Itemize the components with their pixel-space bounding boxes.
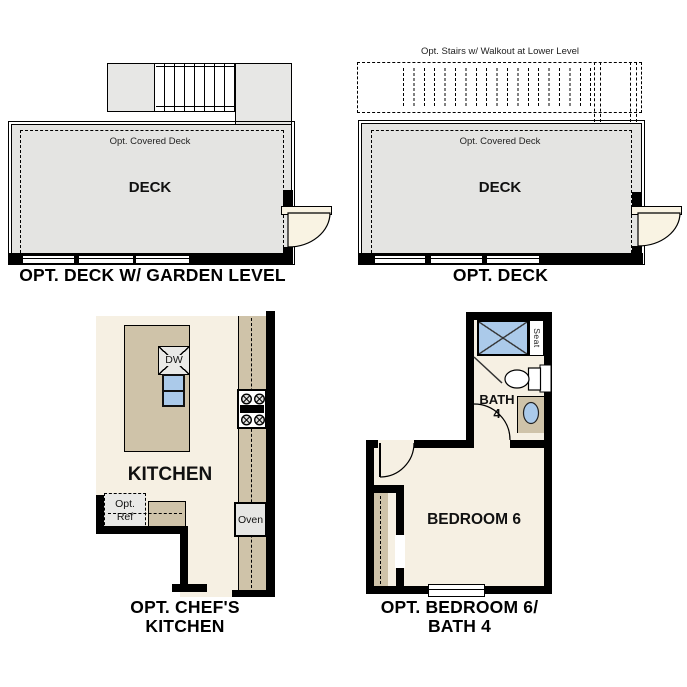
fridge-label-line1: Opt. bbox=[105, 498, 145, 511]
deck-railing bbox=[135, 255, 190, 264]
title-line1: OPT. CHEF'S bbox=[60, 598, 310, 617]
shower bbox=[477, 320, 529, 356]
wall-segment bbox=[632, 192, 642, 207]
bedroom-left-wall bbox=[366, 440, 374, 594]
kitchen-wall bbox=[232, 590, 275, 597]
sink-basin bbox=[164, 376, 183, 390]
floor-plan-sheet: Opt. Covered Deck DECK OPT. DECK W/ GARD… bbox=[0, 0, 687, 687]
bath-label-line2: 4 bbox=[467, 407, 527, 421]
closet-opening bbox=[395, 535, 405, 568]
plan-title-chefs-kitchen: OPT. CHEF'S KITCHEN bbox=[60, 598, 310, 636]
walkout-dashed-line bbox=[600, 62, 601, 122]
stair-stringer-bottom bbox=[156, 106, 234, 107]
dishwasher-label: DW bbox=[164, 355, 184, 366]
kitchen-wall bbox=[266, 311, 275, 597]
closet-shelf bbox=[374, 493, 388, 586]
closet-wall bbox=[396, 568, 404, 586]
bath-label-line1: BATH bbox=[467, 393, 527, 407]
closet-wall bbox=[396, 485, 404, 535]
plan-title-deck-garden: OPT. DECK W/ GARDEN LEVEL bbox=[5, 266, 300, 285]
bedroom-room-label: BEDROOM 6 bbox=[404, 511, 544, 529]
stairs-walkout-note: Opt. Stairs w/ Walkout at Lower Level bbox=[360, 46, 640, 57]
deck-room-label: DECK bbox=[380, 179, 620, 196]
bath-wall bbox=[466, 312, 474, 448]
kitchen-wall bbox=[180, 526, 188, 592]
stair-treads bbox=[154, 63, 237, 112]
plan-title-bedroom6-bath4: OPT. BEDROOM 6/ BATH 4 bbox=[337, 598, 582, 636]
closet-rod-dashed-line bbox=[380, 496, 381, 584]
shower-seat: Seat bbox=[529, 320, 544, 356]
stair-landing-left bbox=[107, 63, 157, 112]
walkout-dashed-line bbox=[630, 62, 631, 122]
kitchen-counter bbox=[238, 316, 267, 590]
bath-room-label: BATH 4 bbox=[467, 393, 527, 420]
deck-railing bbox=[78, 255, 134, 264]
title-line2: KITCHEN bbox=[60, 617, 310, 636]
deck-railing bbox=[22, 255, 75, 264]
kitchen-room-label: KITCHEN bbox=[100, 464, 240, 486]
deck-railing bbox=[486, 255, 540, 264]
door-leaf bbox=[631, 206, 682, 215]
plan-title-deck: OPT. DECK bbox=[353, 266, 648, 285]
oven: Oven bbox=[234, 502, 267, 537]
fridge-dashed-line bbox=[108, 513, 182, 514]
deck-railing bbox=[430, 255, 483, 264]
walkout-dashed-line bbox=[594, 62, 595, 122]
bath-wall bbox=[466, 312, 552, 320]
kitchen-wall bbox=[96, 526, 188, 534]
cooktop-center-bar bbox=[240, 405, 264, 413]
door-opening bbox=[474, 440, 510, 448]
door-opening bbox=[378, 440, 414, 448]
counter-centerline bbox=[251, 318, 252, 588]
right-wall bbox=[544, 312, 552, 594]
kitchen-sink bbox=[162, 374, 185, 407]
wall-segment bbox=[283, 190, 293, 207]
sink-basin bbox=[164, 392, 183, 405]
optional-stair-treads bbox=[403, 66, 591, 108]
stair-landing-right bbox=[235, 63, 292, 126]
title-line1: OPT. BEDROOM 6/ bbox=[337, 598, 582, 617]
dishwasher: DW bbox=[158, 346, 190, 375]
seat-label: Seat bbox=[532, 328, 542, 348]
stair-stringer-top bbox=[156, 66, 234, 67]
deck-room-label: DECK bbox=[30, 179, 270, 196]
deck-railing bbox=[374, 255, 426, 264]
covered-deck-label: Opt. Covered Deck bbox=[380, 136, 620, 147]
oven-label: Oven bbox=[238, 514, 263, 526]
door-leaf bbox=[281, 206, 332, 215]
title-line2: BATH 4 bbox=[337, 617, 582, 636]
walkout-dashed-line bbox=[636, 62, 637, 122]
covered-deck-label: Opt. Covered Deck bbox=[30, 136, 270, 147]
bedroom-window bbox=[428, 584, 485, 597]
kitchen-wall bbox=[172, 584, 207, 592]
optional-fridge: Opt. Ref bbox=[104, 493, 146, 530]
